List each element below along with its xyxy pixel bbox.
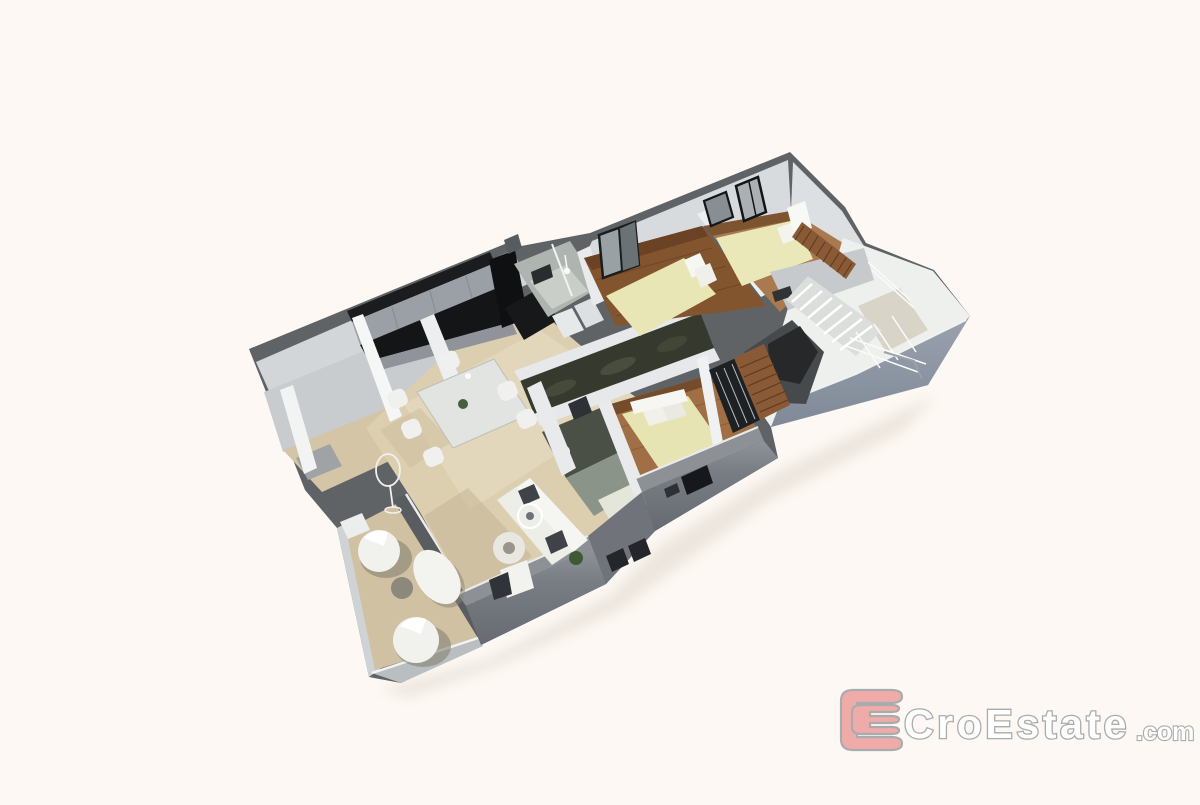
- svg-text:.com: .com: [1136, 718, 1194, 746]
- svg-text:CroEstate: CroEstate: [904, 701, 1130, 747]
